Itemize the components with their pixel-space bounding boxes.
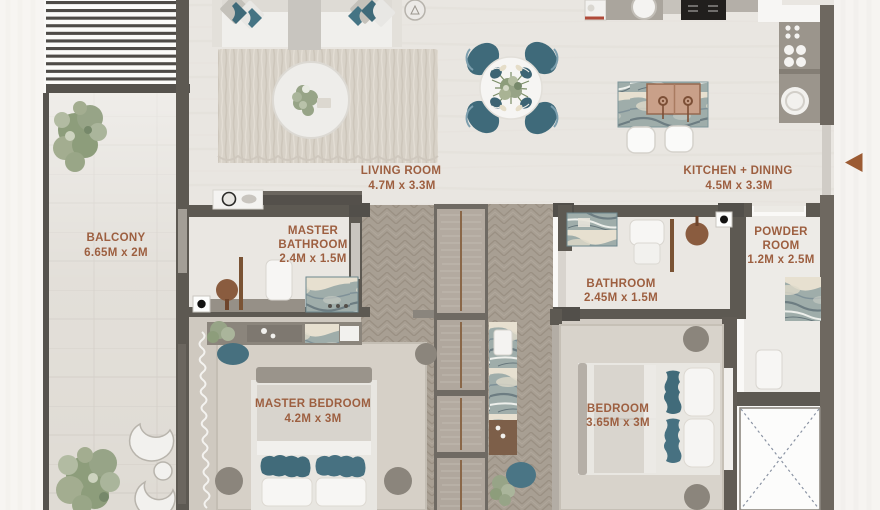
svg-text:MASTER BEDROOM: MASTER BEDROOM [255, 398, 371, 410]
svg-text:BATHROOM: BATHROOM [278, 239, 347, 251]
svg-text:BALCONY: BALCONY [87, 232, 146, 244]
svg-text:6.65M x 2M: 6.65M x 2M [84, 247, 148, 259]
svg-text:1.2M x 2.5M: 1.2M x 2.5M [747, 254, 814, 266]
svg-text:BATHROOM: BATHROOM [586, 278, 655, 290]
svg-text:2.4M x 1.5M: 2.4M x 1.5M [279, 253, 346, 265]
svg-text:MASTER: MASTER [288, 225, 339, 237]
svg-text:KITCHEN + DINING: KITCHEN + DINING [683, 165, 792, 177]
svg-text:4.2M x 3M: 4.2M x 3M [284, 413, 341, 425]
svg-text:POWDER: POWDER [754, 226, 808, 238]
svg-text:BEDROOM: BEDROOM [587, 403, 649, 415]
svg-text:2.45M x 1.5M: 2.45M x 1.5M [584, 292, 658, 304]
svg-text:LIVING ROOM: LIVING ROOM [361, 165, 442, 177]
svg-text:4.5M x 3.3M: 4.5M x 3.3M [705, 180, 772, 192]
svg-text:ROOM: ROOM [763, 240, 800, 252]
svg-text:4.7M x 3.3M: 4.7M x 3.3M [368, 180, 435, 192]
svg-text:3.65M x 3M: 3.65M x 3M [586, 417, 650, 429]
